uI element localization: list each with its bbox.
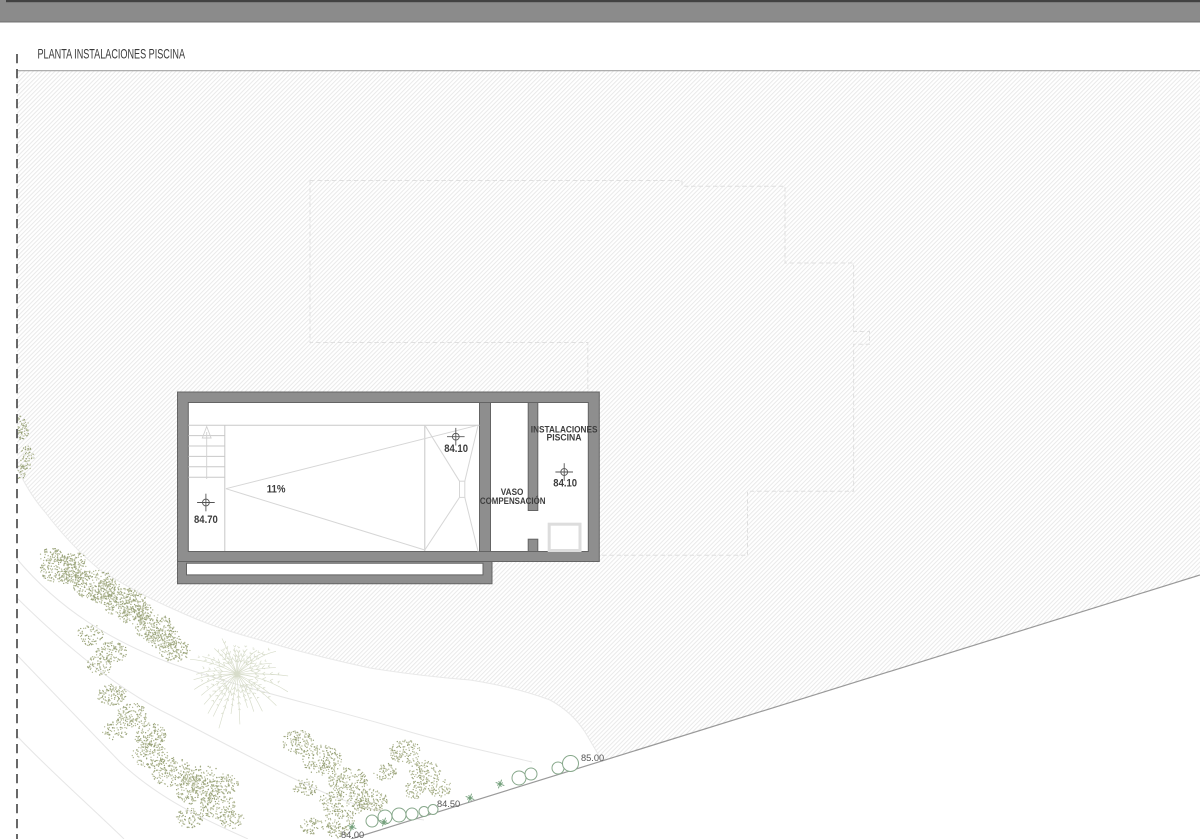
svg-text:COMPENSACIÓN: COMPENSACIÓN bbox=[480, 495, 546, 506]
svg-text:84.10: 84.10 bbox=[553, 477, 577, 489]
svg-text:84.50: 84.50 bbox=[437, 799, 460, 810]
svg-text:PLANTA INSTALACIONES PISCINA: PLANTA INSTALACIONES PISCINA bbox=[38, 45, 186, 61]
svg-text:84.10: 84.10 bbox=[444, 443, 468, 455]
svg-text:84.70: 84.70 bbox=[194, 514, 218, 526]
svg-text:85.00: 85.00 bbox=[581, 753, 604, 764]
svg-text:11%: 11% bbox=[267, 484, 286, 496]
svg-text:PISCINA: PISCINA bbox=[547, 433, 582, 443]
svg-text:84.00: 84.00 bbox=[341, 830, 364, 839]
